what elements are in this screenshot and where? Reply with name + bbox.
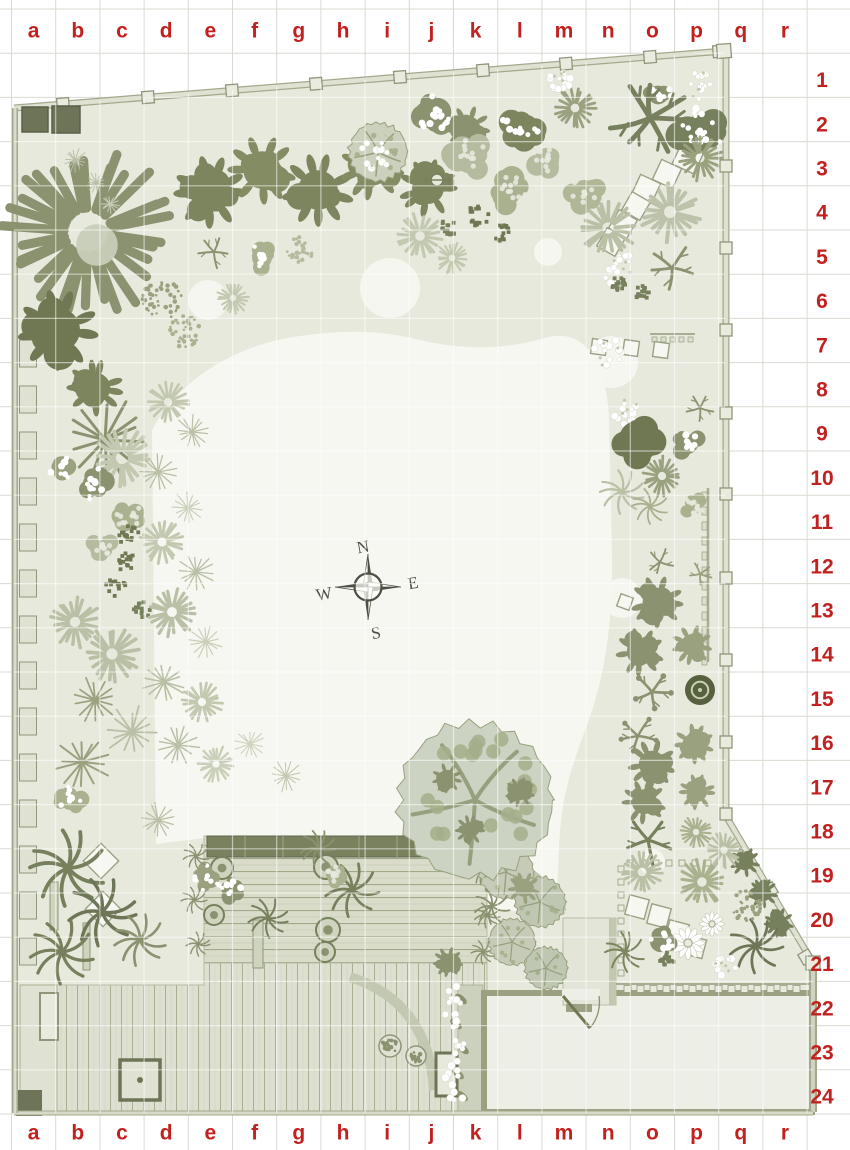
row-label: 15 — [810, 688, 834, 711]
column-label-bottom: k — [470, 1122, 482, 1145]
fence-post — [720, 160, 732, 172]
column-label-top: p — [690, 20, 703, 43]
column-label-top: d — [160, 20, 173, 43]
stepping-stone — [623, 340, 640, 357]
fence-post — [720, 242, 732, 254]
row-label: 11 — [811, 511, 834, 534]
row-label: 17 — [810, 776, 833, 799]
obelisk — [50, 882, 58, 930]
door-opening — [562, 989, 600, 1000]
wall-planter-box — [20, 478, 37, 505]
column-label-bottom: p — [690, 1122, 703, 1145]
column-label-bottom: e — [205, 1122, 217, 1145]
column-label-bottom: a — [28, 1122, 40, 1145]
row-label: 19 — [810, 865, 833, 888]
garden-plan-canvas: NESWaabbccddeeffgghhiijjkkllmmnnooppqqrr… — [0, 0, 850, 1150]
column-label-bottom: c — [116, 1122, 128, 1145]
column-label-top: o — [646, 20, 659, 43]
wall-planter-box — [20, 938, 37, 965]
column-label-bottom: h — [337, 1122, 350, 1145]
column-label-top: r — [781, 20, 789, 43]
compass-circle — [355, 574, 382, 601]
stepping-stone — [647, 904, 671, 928]
column-label-top: j — [427, 20, 434, 43]
fence-post — [720, 736, 732, 748]
row-label: 24 — [810, 1086, 834, 1109]
fence-post — [720, 808, 732, 820]
column-label-bottom: q — [734, 1122, 747, 1145]
column-label-top: i — [384, 20, 390, 43]
column-label-bottom: r — [781, 1122, 789, 1145]
fence-post — [394, 71, 407, 84]
row-label: 18 — [810, 821, 834, 844]
column-label-top: e — [205, 20, 217, 43]
column-label-top: n — [602, 20, 615, 43]
stepping-stone — [653, 342, 670, 359]
row-label: 14 — [810, 644, 834, 667]
row-label: 6 — [816, 290, 828, 313]
row-label: 3 — [816, 158, 828, 181]
column-label-top: m — [555, 20, 574, 43]
plant-symbol-ring — [685, 675, 715, 705]
row-label: 13 — [810, 600, 833, 623]
raised-planter — [22, 107, 48, 132]
wall-planter-box — [20, 754, 37, 781]
row-label: 1 — [816, 69, 828, 92]
row-label: 2 — [816, 113, 828, 136]
row-label: 7 — [816, 334, 828, 357]
column-label-bottom: n — [602, 1122, 615, 1145]
column-label-bottom: d — [160, 1122, 173, 1145]
column-label-bottom: b — [71, 1122, 84, 1145]
garden-plan-page: NESWaabbccddeeffgghhiijjkkllmmnnooppqqrr… — [0, 0, 850, 1150]
row-label: 16 — [810, 732, 833, 755]
row-label: 10 — [810, 467, 833, 490]
column-label-top: g — [292, 20, 305, 43]
row-label: 20 — [810, 909, 833, 932]
row-label: 12 — [810, 555, 833, 578]
column-label-top: a — [28, 20, 40, 43]
column-label-bottom: o — [646, 1122, 659, 1145]
wall-planter-box — [20, 708, 37, 735]
fence-post — [644, 50, 657, 63]
row-label: 8 — [816, 379, 828, 402]
column-label-bottom: i — [384, 1122, 390, 1145]
fence-post — [720, 324, 732, 336]
wall-planter-box — [20, 524, 37, 551]
wall-planter-box — [20, 662, 37, 689]
row-label: 4 — [816, 202, 828, 225]
row-label: 23 — [810, 1042, 833, 1065]
fence-post — [477, 64, 490, 77]
row-label: 5 — [816, 246, 828, 269]
fence-post — [560, 57, 573, 70]
column-label-bottom: f — [251, 1122, 259, 1145]
column-label-bottom: j — [427, 1122, 434, 1145]
row-label: 22 — [810, 997, 833, 1020]
column-label-top: q — [734, 20, 747, 43]
column-label-top: k — [470, 20, 482, 43]
fence-post — [720, 572, 732, 584]
column-label-top: f — [251, 20, 259, 43]
column-label-bottom: m — [555, 1122, 574, 1145]
column-label-top: h — [337, 20, 350, 43]
wall-planter-box — [20, 616, 37, 643]
column-label-top: c — [116, 20, 128, 43]
column-label-top: l — [517, 20, 523, 43]
column-label-top: b — [71, 20, 84, 43]
fence-post — [720, 654, 732, 666]
row-label: 21 — [810, 953, 834, 976]
stepping-stone — [625, 895, 649, 919]
fence-post — [720, 488, 732, 500]
column-label-bottom: g — [292, 1122, 305, 1145]
wall-planter-box — [20, 432, 37, 459]
fence-post — [720, 407, 732, 419]
wall-planter-box — [20, 386, 37, 413]
column-label-bottom: l — [517, 1122, 523, 1145]
row-label: 9 — [816, 423, 828, 446]
wall-planter-box — [20, 892, 37, 919]
